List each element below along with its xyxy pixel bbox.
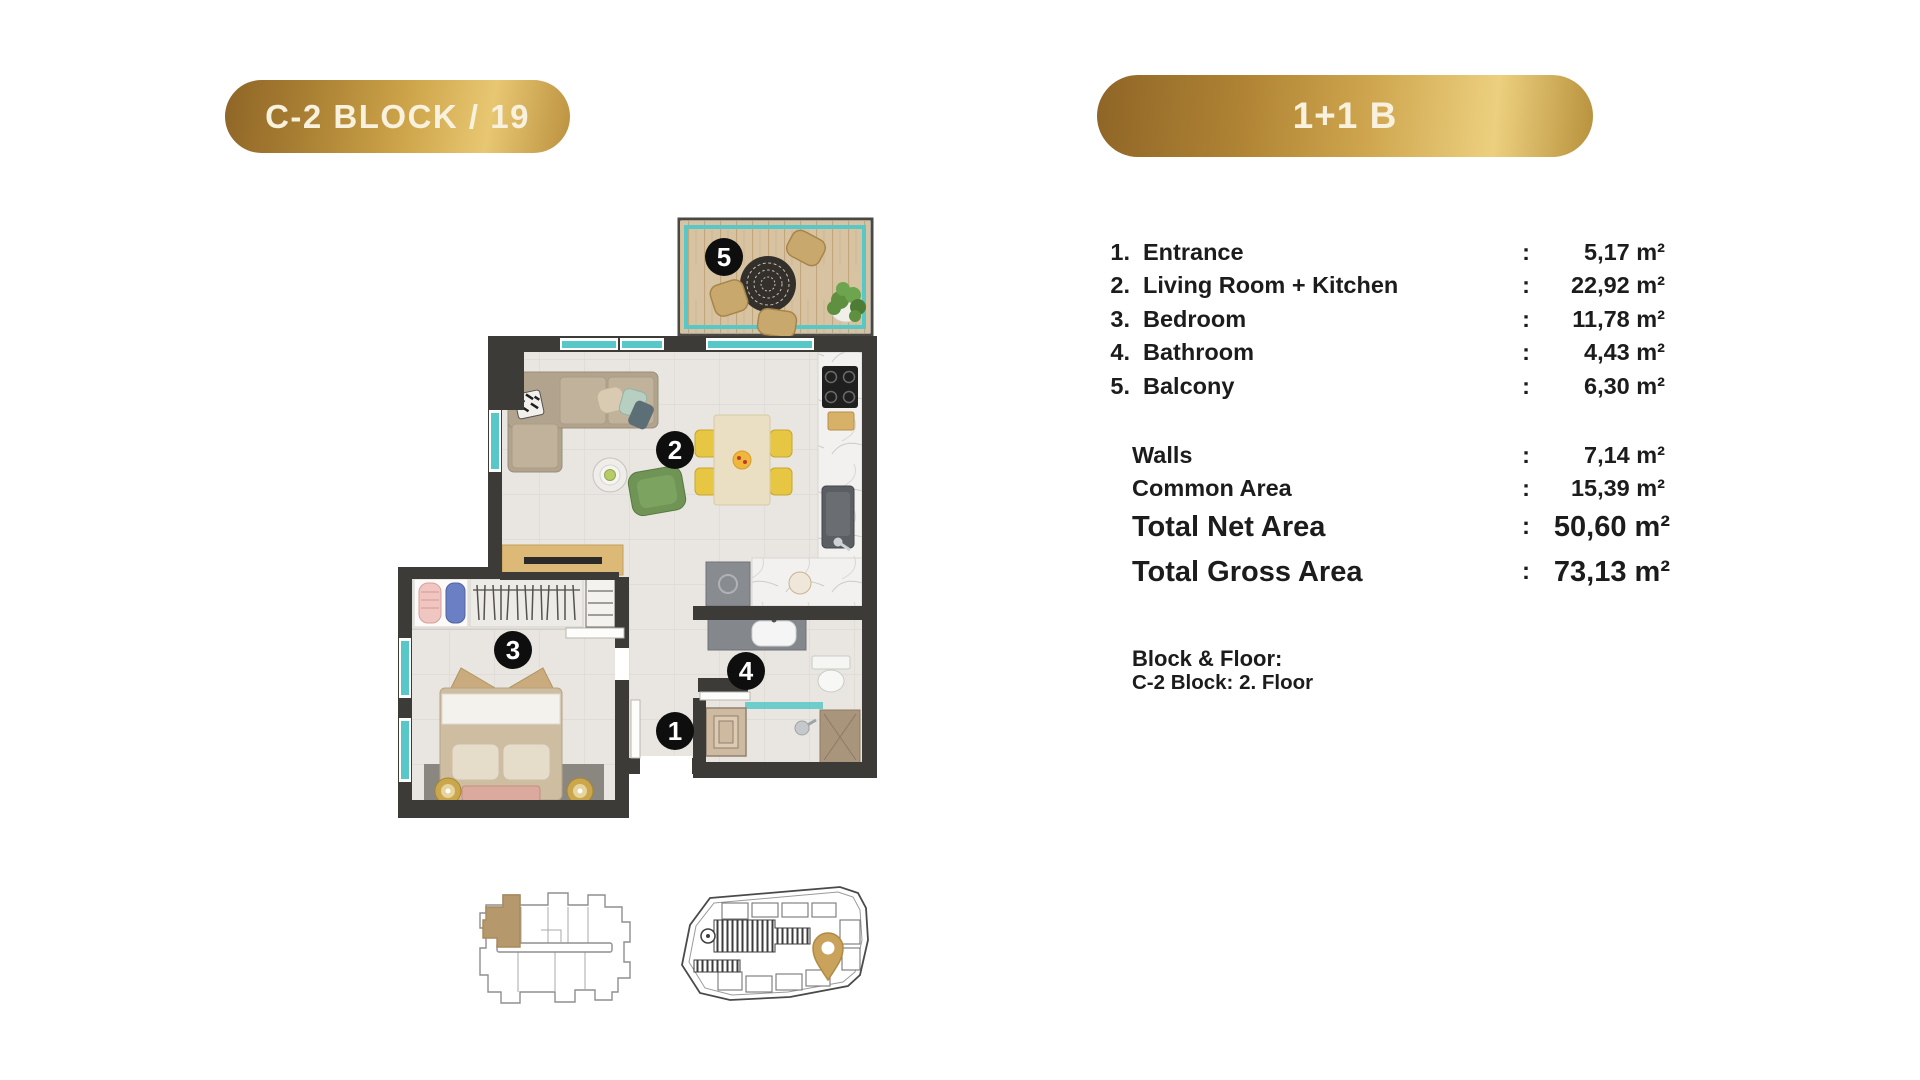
block-badge: C-2 BLOCK / 19	[225, 80, 570, 153]
counter-decor	[789, 572, 811, 594]
mini-maps	[455, 878, 900, 1023]
blue-item	[446, 583, 465, 623]
cooktop	[822, 366, 858, 408]
row-label: Bedroom	[1143, 302, 1246, 336]
row-label: Walls	[1132, 438, 1193, 472]
block-floor-title: Block & Floor:	[1132, 646, 1282, 672]
floor-key-plan	[480, 893, 630, 1003]
block-floor-value: C-2 Block: 2. Floor	[1132, 671, 1313, 695]
area-row-walls: Walls : 7,14 m²	[1100, 438, 1685, 472]
unit-type-badge: 1+1 B	[1097, 75, 1593, 157]
row-label: Total Gross Area	[1132, 552, 1362, 592]
row-value: 6,30 m²	[1430, 369, 1665, 403]
row-label: Living Room + Kitchen	[1143, 268, 1398, 302]
bathroom-door-leaf	[700, 692, 750, 700]
area-row-total-net: Total Net Area : 50,60 m²	[1100, 507, 1685, 547]
area-row-total-gross: Total Gross Area : 73,13 m²	[1100, 552, 1685, 592]
row-value: 4,43 m²	[1430, 335, 1665, 369]
pillow	[503, 744, 550, 780]
row-value: 5,17 m²	[1430, 235, 1665, 269]
coffee-table	[593, 458, 627, 492]
row-value: 15,39 m²	[1430, 471, 1665, 505]
entrance-door-leaf	[631, 700, 640, 758]
room-marker-3: 3	[494, 631, 532, 669]
row-label: Total Net Area	[1132, 507, 1325, 547]
row-label: Balcony	[1143, 369, 1234, 403]
entrance-door-opening	[640, 756, 692, 776]
site-plan	[682, 887, 868, 1000]
wardrobe	[412, 577, 615, 629]
row-value: 73,13 m²	[1430, 552, 1670, 592]
block-badge-label: C-2 BLOCK / 19	[265, 98, 530, 136]
row-value: 11,78 m²	[1430, 302, 1665, 336]
bathroom-cabinet	[706, 708, 746, 756]
cutting-board	[828, 412, 854, 430]
shower-glass	[745, 702, 823, 709]
flyer-canvas: C-2 BLOCK / 19 1+1 B	[0, 0, 1920, 1080]
room-marker-4: 4	[727, 652, 765, 690]
area-row-bedroom: 3. Bedroom : 11,78 m²	[1100, 302, 1685, 336]
tv	[524, 557, 602, 564]
sheet-fold	[442, 694, 560, 724]
vanity-sink	[752, 621, 796, 646]
svg-text:1: 1	[668, 716, 682, 746]
row-number: 5.	[1100, 369, 1130, 403]
room-marker-5: 5	[705, 238, 743, 276]
floor-plan: 1 2 3 4 5	[390, 200, 890, 830]
row-label: Common Area	[1132, 471, 1292, 505]
row-number: 2.	[1100, 268, 1130, 302]
area-row-bathroom: 4. Bathroom : 4,43 m²	[1100, 335, 1685, 369]
unit-type-badge-label: 1+1 B	[1293, 95, 1398, 137]
kitchen-sink	[822, 486, 854, 550]
area-row-balcony: 5. Balcony : 6,30 m²	[1100, 369, 1685, 403]
svg-text:3: 3	[506, 635, 520, 665]
room-marker-2: 2	[656, 431, 694, 469]
shower-head	[795, 721, 809, 735]
washing-machine	[706, 562, 750, 606]
stair-block	[694, 960, 740, 972]
area-row-living-kitchen: 2. Living Room + Kitchen : 22,92 m²	[1100, 268, 1685, 302]
fruit-plate	[733, 451, 751, 469]
row-value: 50,60 m²	[1430, 507, 1670, 547]
area-row-entrance: 1. Entrance : 5,17 m²	[1100, 235, 1685, 269]
bed-bench	[462, 786, 540, 801]
svg-text:5: 5	[717, 242, 731, 272]
row-label: Entrance	[1143, 235, 1244, 269]
row-value: 7,14 m²	[1430, 438, 1665, 472]
svg-text:2: 2	[668, 435, 682, 465]
area-row-common-area: Common Area : 15,39 m²	[1100, 471, 1685, 505]
svg-text:4: 4	[739, 656, 754, 686]
room-marker-1: 1	[656, 712, 694, 750]
row-number: 4.	[1100, 335, 1130, 369]
row-number: 1.	[1100, 235, 1130, 269]
row-number: 3.	[1100, 302, 1130, 336]
pink-item	[419, 583, 441, 623]
row-label: Bathroom	[1143, 335, 1254, 369]
tv-cabinet	[502, 545, 623, 575]
pillow	[452, 744, 499, 780]
bedroom-door-leaf	[566, 628, 624, 638]
green-armchair	[627, 465, 688, 518]
row-value: 22,92 m²	[1430, 268, 1665, 302]
